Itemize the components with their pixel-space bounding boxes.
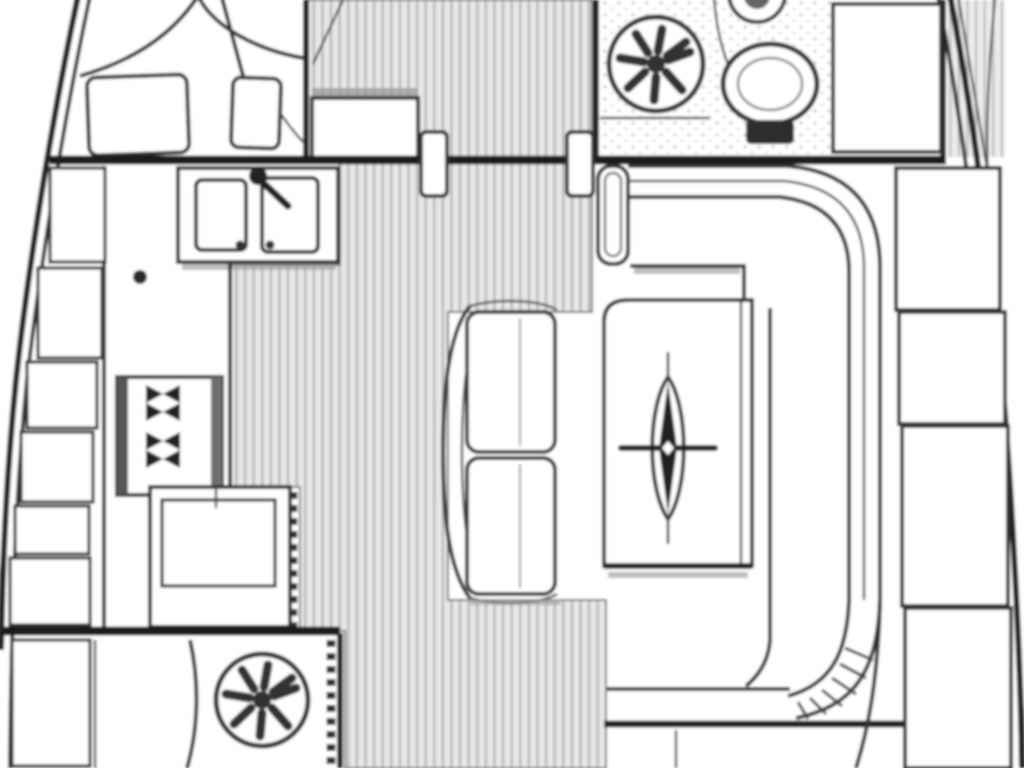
bench-cushion	[467, 312, 555, 452]
sink-drain	[266, 241, 275, 250]
hull-locker	[15, 506, 89, 554]
hull-locker	[27, 362, 97, 428]
head	[596, 0, 943, 158]
hull-locker	[38, 268, 102, 358]
salon-table	[604, 300, 752, 575]
counter-fitting	[133, 270, 147, 284]
hull-locker	[902, 426, 1008, 606]
hull-locker	[896, 168, 1000, 310]
hull-locker	[905, 608, 1011, 768]
floor-plan-stage	[0, 0, 1024, 768]
hull-locker	[10, 558, 90, 625]
hull-locker	[899, 312, 1005, 424]
stove-gimbal-left	[117, 377, 128, 495]
pillow	[87, 74, 190, 155]
yacht-floor-plan	[0, 0, 1024, 768]
ventilation-fan-icon	[216, 654, 308, 746]
hull-lockers-starboard	[896, 168, 1011, 768]
bench-cushion	[467, 458, 555, 594]
cabinet-lid	[162, 500, 275, 586]
ventilation-fan-icon	[609, 17, 703, 111]
hull-locker	[50, 168, 105, 262]
sink-drain	[236, 241, 245, 250]
hull-locker	[12, 640, 90, 766]
pillow	[231, 77, 281, 149]
partition-end	[598, 166, 628, 264]
entry-step	[312, 98, 418, 158]
stove	[117, 377, 222, 495]
door-leaf	[567, 132, 593, 196]
door-leaf	[421, 132, 447, 196]
head-counter	[833, 4, 941, 152]
galley-aft-cabinet	[150, 487, 293, 627]
sink-basin	[196, 180, 246, 250]
plan-root	[0, 0, 1024, 768]
hull-locker	[21, 432, 93, 502]
double-sink	[178, 167, 338, 262]
stove-gimbal-right	[211, 377, 222, 495]
